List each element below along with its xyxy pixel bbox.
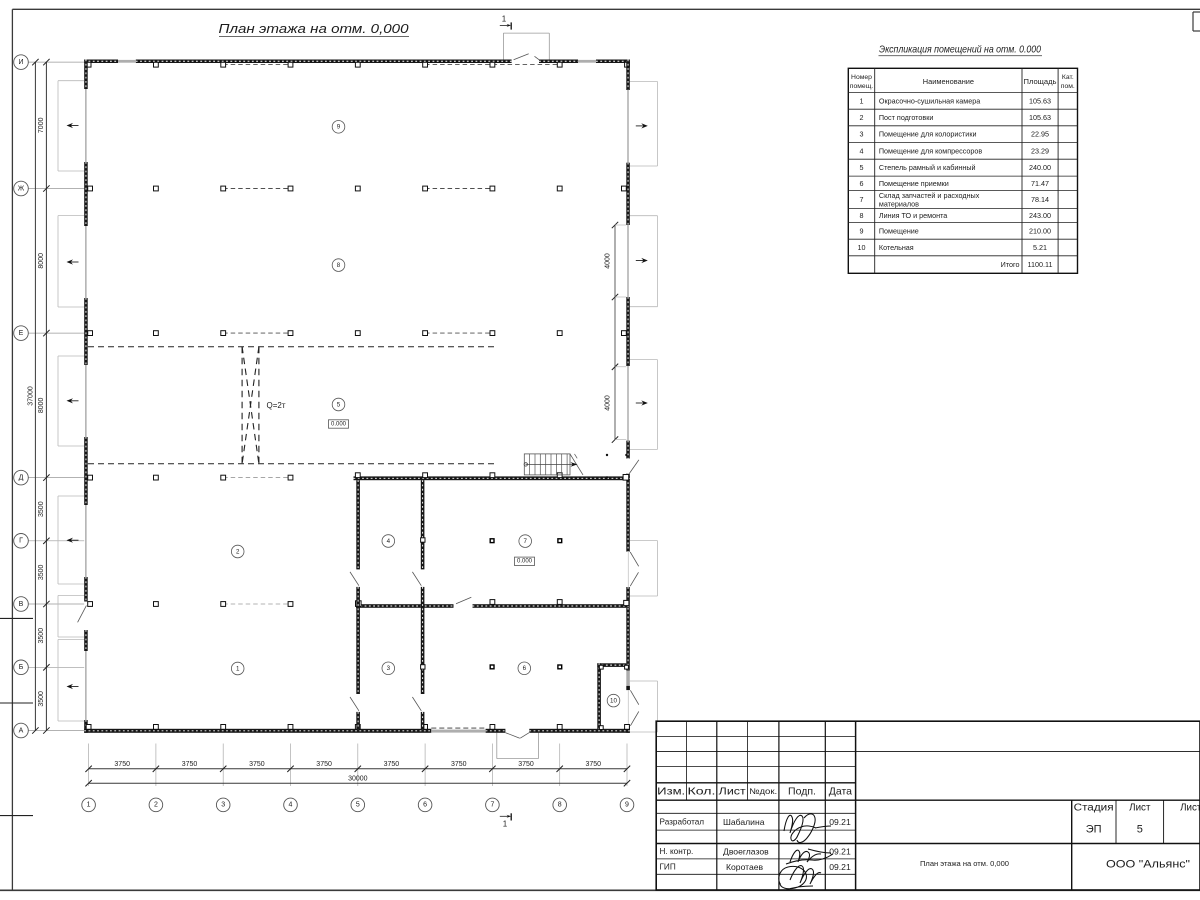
svg-text:4: 4 bbox=[289, 802, 293, 809]
svg-text:9: 9 bbox=[860, 226, 864, 235]
svg-text:Степель рамный и кабинный: Степель рамный и кабинный bbox=[879, 163, 976, 172]
svg-text:2: 2 bbox=[154, 802, 158, 809]
svg-text:0.000: 0.000 bbox=[517, 559, 533, 565]
svg-text:243.00: 243.00 bbox=[1029, 211, 1051, 220]
svg-text:3750: 3750 bbox=[384, 761, 400, 768]
svg-text:10: 10 bbox=[858, 243, 866, 252]
svg-text:3: 3 bbox=[221, 802, 225, 809]
svg-text:240.00: 240.00 bbox=[1029, 163, 1051, 172]
svg-text:А: А bbox=[19, 727, 24, 734]
svg-text:План этажа на отм. 0,000: План этажа на отм. 0,000 bbox=[920, 859, 1009, 868]
svg-text:3750: 3750 bbox=[182, 761, 198, 768]
svg-text:Экспликация помещений на отм.: Экспликация помещений на отм. 0.000 bbox=[879, 45, 1041, 56]
svg-text:5: 5 bbox=[356, 802, 360, 809]
svg-text:3750: 3750 bbox=[451, 761, 467, 768]
svg-text:Кат.: Кат. bbox=[1062, 74, 1074, 81]
svg-text:9: 9 bbox=[337, 124, 341, 131]
svg-text:30000: 30000 bbox=[348, 776, 368, 783]
svg-text:3750: 3750 bbox=[586, 761, 602, 768]
svg-text:3: 3 bbox=[387, 665, 391, 672]
svg-text:3750: 3750 bbox=[249, 761, 265, 768]
svg-text:3750: 3750 bbox=[518, 761, 534, 768]
svg-text:помещ.: помещ. bbox=[850, 83, 874, 90]
svg-text:1: 1 bbox=[503, 820, 508, 829]
svg-text:Ж: Ж bbox=[18, 185, 25, 192]
svg-text:7: 7 bbox=[860, 195, 864, 204]
svg-text:71.47: 71.47 bbox=[1031, 179, 1049, 188]
svg-text:1: 1 bbox=[860, 96, 864, 105]
svg-text:8000: 8000 bbox=[38, 253, 45, 269]
svg-text:Окрасочно-сушильная камера: Окрасочно-сушильная камера bbox=[879, 96, 980, 105]
svg-text:Листов: Листов bbox=[1180, 803, 1200, 814]
svg-text:8: 8 bbox=[558, 802, 562, 809]
svg-text:Q=2т: Q=2т bbox=[267, 401, 286, 410]
svg-text:Лист: Лист bbox=[1129, 803, 1151, 814]
svg-text:И: И bbox=[18, 59, 23, 66]
svg-text:22.95: 22.95 bbox=[1031, 130, 1049, 139]
svg-text:Д: Д bbox=[19, 474, 24, 481]
svg-text:1: 1 bbox=[502, 15, 507, 24]
svg-text:6: 6 bbox=[860, 179, 864, 188]
svg-text:4000: 4000 bbox=[605, 395, 612, 411]
svg-text:5.21: 5.21 bbox=[1033, 243, 1047, 252]
svg-text:4: 4 bbox=[387, 538, 391, 545]
svg-text:3500: 3500 bbox=[38, 501, 45, 517]
svg-text:4000: 4000 bbox=[605, 253, 612, 269]
svg-text:Котельная: Котельная bbox=[879, 243, 914, 252]
svg-text:Изм.: Изм. bbox=[657, 785, 685, 797]
svg-text:5: 5 bbox=[860, 163, 864, 172]
svg-text:Разработал: Разработал bbox=[660, 817, 705, 826]
svg-text:материалов: материалов bbox=[879, 200, 919, 209]
svg-text:Шабалина: Шабалина bbox=[723, 817, 765, 827]
svg-text:Е: Е bbox=[19, 330, 24, 337]
svg-text:Кол.: Кол. bbox=[688, 785, 716, 797]
svg-text:Линия ТО и ремонта: Линия ТО и ремонта bbox=[879, 211, 947, 220]
svg-text:5: 5 bbox=[337, 401, 341, 408]
svg-text:Наименование: Наименование bbox=[923, 77, 974, 86]
svg-text:0.000: 0.000 bbox=[331, 421, 347, 427]
svg-text:78.14: 78.14 bbox=[1031, 195, 1049, 204]
svg-text:ООО "Альянс": ООО "Альянс" bbox=[1106, 859, 1190, 871]
svg-text:Двоеглазов: Двоеглазов bbox=[723, 846, 769, 856]
svg-text:3: 3 bbox=[860, 130, 864, 139]
svg-text:7: 7 bbox=[523, 538, 527, 545]
svg-text:Пост подготовки: Пост подготовки bbox=[879, 113, 933, 122]
svg-text:1: 1 bbox=[236, 665, 240, 672]
svg-text:3500: 3500 bbox=[38, 628, 45, 644]
svg-text:Помещение: Помещение bbox=[879, 226, 919, 235]
svg-text:1100.11: 1100.11 bbox=[1028, 260, 1053, 269]
svg-text:09.21: 09.21 bbox=[829, 862, 851, 872]
svg-text:105.63: 105.63 bbox=[1029, 96, 1051, 105]
svg-text:7: 7 bbox=[490, 802, 494, 809]
svg-text:3500: 3500 bbox=[38, 565, 45, 581]
svg-text:Помещение для колористики: Помещение для колористики bbox=[879, 130, 977, 139]
svg-text:8: 8 bbox=[337, 262, 341, 269]
svg-text:105.63: 105.63 bbox=[1029, 113, 1051, 122]
svg-text:8000: 8000 bbox=[38, 398, 45, 414]
svg-text:6: 6 bbox=[423, 802, 427, 809]
svg-text:Дата: Дата bbox=[829, 785, 852, 797]
svg-text:ЭП: ЭП bbox=[1086, 823, 1102, 835]
svg-text:2: 2 bbox=[236, 548, 240, 555]
svg-text:6: 6 bbox=[523, 665, 527, 672]
svg-text:Подп.: Подп. bbox=[788, 785, 816, 797]
svg-text:Итого: Итого bbox=[1001, 260, 1020, 269]
svg-text:№док.: №док. bbox=[749, 787, 777, 796]
svg-text:3750: 3750 bbox=[114, 761, 130, 768]
svg-text:37000: 37000 bbox=[27, 386, 34, 406]
svg-text:Стадия: Стадия bbox=[1074, 803, 1114, 814]
svg-text:09.21: 09.21 bbox=[829, 817, 851, 827]
svg-text:Лист: Лист bbox=[719, 785, 746, 797]
svg-text:3500: 3500 bbox=[38, 691, 45, 707]
svg-text:10: 10 bbox=[610, 697, 617, 704]
svg-text:5: 5 bbox=[1137, 823, 1143, 835]
svg-text:7000: 7000 bbox=[38, 117, 45, 133]
svg-text:Г: Г bbox=[19, 538, 23, 545]
svg-text:Коротаев: Коротаев bbox=[726, 862, 764, 872]
svg-text:ГИП: ГИП bbox=[660, 862, 676, 871]
svg-text:В: В bbox=[19, 601, 24, 608]
svg-text:Помещение для компрессоров: Помещение для компрессоров bbox=[879, 146, 982, 155]
svg-text:пом.: пом. bbox=[1061, 83, 1075, 90]
svg-text:1: 1 bbox=[87, 802, 91, 809]
svg-text:План этажа на отм. 0,000: План этажа на отм. 0,000 bbox=[219, 21, 410, 36]
svg-text:Н. контр.: Н. контр. bbox=[660, 847, 694, 856]
svg-text:9: 9 bbox=[625, 802, 629, 809]
svg-text:Склад запчастей и расходных: Склад запчастей и расходных bbox=[879, 191, 980, 200]
svg-text:8: 8 bbox=[860, 211, 864, 220]
svg-text:Помещение приемки: Помещение приемки bbox=[879, 179, 949, 188]
svg-text:3750: 3750 bbox=[316, 761, 332, 768]
svg-text:2: 2 bbox=[860, 113, 864, 122]
svg-text:Б: Б bbox=[19, 664, 24, 671]
svg-text:Номер: Номер bbox=[851, 74, 872, 81]
svg-text:Площадь: Площадь bbox=[1024, 77, 1057, 86]
svg-text:23.29: 23.29 bbox=[1031, 146, 1049, 155]
svg-text:210.00: 210.00 bbox=[1029, 226, 1051, 235]
svg-text:4: 4 bbox=[860, 146, 864, 155]
